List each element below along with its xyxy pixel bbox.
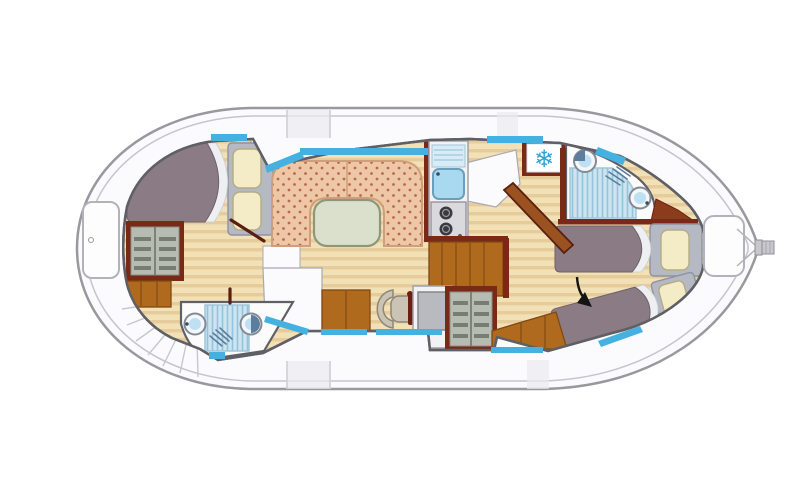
drainer: [432, 145, 465, 167]
door-nook: [263, 246, 300, 270]
window: [211, 134, 247, 141]
bow-deck-hatch: [83, 202, 119, 278]
window: [491, 347, 543, 353]
stern-deck-hatch: [704, 216, 744, 276]
sink-icon: [630, 188, 651, 209]
steering-console: [418, 292, 448, 330]
snowflake-icon: ❄: [534, 145, 554, 173]
sink-icon: [185, 314, 206, 335]
bench: [322, 290, 370, 331]
window: [321, 329, 367, 335]
rudder: [755, 240, 774, 255]
boat-floor-plan: ❄: [0, 0, 810, 500]
window: [209, 352, 225, 359]
stove-burners-icon: [431, 202, 466, 240]
salon-dinette: [272, 161, 422, 246]
bathroom-side-wall: [560, 148, 566, 221]
floor-plan-canvas: ❄: [0, 0, 810, 500]
galley-wall-bottom: [424, 236, 508, 242]
window: [487, 136, 543, 143]
window: [300, 148, 428, 155]
dinette-table: [314, 200, 380, 246]
toilet-icon: [241, 314, 262, 335]
toilet-icon: [574, 150, 596, 172]
corridor-wall: [503, 238, 509, 298]
pillow: [233, 149, 261, 188]
window: [376, 329, 442, 335]
wardrobe-helm: [445, 286, 497, 350]
wardrobe-bow: [126, 221, 184, 281]
single-bed-1: [555, 224, 702, 276]
